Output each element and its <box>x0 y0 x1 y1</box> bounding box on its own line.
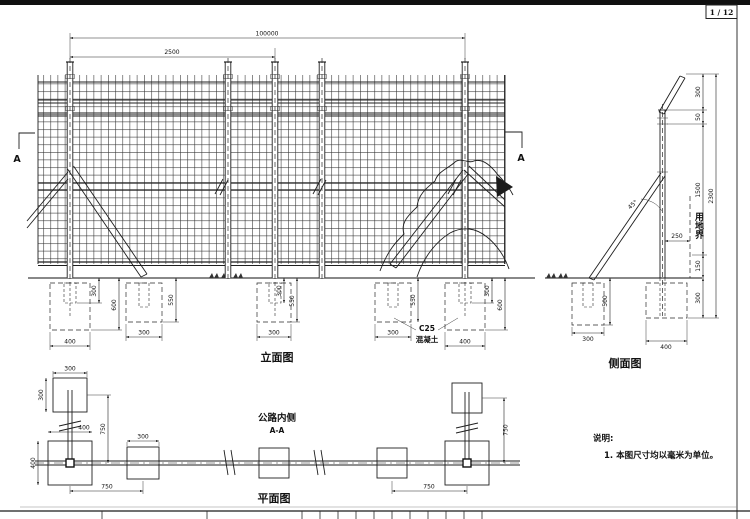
svg-text:400: 400 <box>78 425 90 432</box>
svg-text:50: 50 <box>695 113 702 121</box>
brace-angle: 45° <box>627 199 662 211</box>
svg-text:750: 750 <box>503 424 510 436</box>
svg-text:400: 400 <box>459 339 471 346</box>
svg-text:750: 750 <box>423 484 435 491</box>
svg-text:600: 600 <box>497 299 504 311</box>
plan-break-marks <box>224 450 325 475</box>
page-number: 1 / 12 <box>710 8 734 17</box>
foundation-brace2: 550 300 <box>375 278 418 341</box>
concrete-word: 混凝土 <box>416 334 439 344</box>
svg-text:2300: 2300 <box>708 188 715 203</box>
svg-text:2500: 2500 <box>164 49 179 56</box>
svg-text:300: 300 <box>695 292 702 304</box>
post <box>66 58 75 318</box>
notes-block: 说明: 1. 本图尺寸均以毫米为单位。 <box>593 433 718 461</box>
drawing-sheet: 1 / 12 <box>0 0 750 519</box>
side-dim-chain: 300 50 1500 150 300 2300 <box>667 74 719 318</box>
section-name: A-A <box>270 426 285 435</box>
post <box>461 58 470 318</box>
post <box>224 58 233 280</box>
anchor-footing <box>452 383 482 413</box>
section-letter: A <box>517 153 525 164</box>
post-section <box>463 459 471 467</box>
elevation-label: 立面图 <box>261 350 294 364</box>
svg-text:100000: 100000 <box>256 31 279 38</box>
post <box>271 58 280 318</box>
svg-text:400: 400 <box>64 339 76 346</box>
side-view: 45° 用地界 250 300 50 1500 150 300 <box>545 74 719 370</box>
svg-text:300: 300 <box>137 434 149 441</box>
side-brace <box>589 173 665 280</box>
plan-post-right <box>445 383 489 485</box>
svg-text:300: 300 <box>484 285 491 297</box>
top-border-bar <box>0 0 750 5</box>
foundation-brace1: 550 300 <box>126 278 179 341</box>
dim-total-length: 100000 <box>70 31 465 60</box>
foundation-post5: 300 600 400 <box>445 278 508 350</box>
notes-item: 1. 本图尺寸均以毫米为单位。 <box>604 450 718 461</box>
anchor-footing <box>53 378 87 412</box>
side-label: 侧面图 <box>609 356 642 370</box>
svg-text:550: 550 <box>168 294 175 306</box>
svg-text:300: 300 <box>268 330 280 337</box>
svg-text:250: 250 <box>671 233 683 240</box>
svg-text:300: 300 <box>38 389 45 401</box>
section-letter: A <box>13 154 21 165</box>
title-block <box>0 507 750 519</box>
ground-hatch <box>546 273 568 278</box>
svg-text:750: 750 <box>101 484 113 491</box>
notes-title: 说明: <box>593 433 613 444</box>
svg-text:300: 300 <box>138 330 150 337</box>
drawing-canvas: 1 / 12 <box>0 0 750 519</box>
svg-text:600: 600 <box>111 299 118 311</box>
svg-text:750: 750 <box>100 423 107 435</box>
plan-view: 300 300 400 400 750 750 300 750 750 公路内侧… <box>30 366 520 506</box>
post <box>318 58 327 280</box>
post-section <box>66 459 74 467</box>
svg-text:550: 550 <box>410 294 417 306</box>
side-post-arm <box>659 76 685 114</box>
svg-text:500: 500 <box>602 295 609 307</box>
mesh-horizontal-wires <box>38 82 505 264</box>
plan-post-left <box>48 378 92 485</box>
dim-bay: 2500 <box>70 48 275 59</box>
svg-text:45°: 45° <box>627 199 640 211</box>
side-post <box>657 104 668 316</box>
svg-text:550: 550 <box>289 295 296 307</box>
svg-text:1500: 1500 <box>695 182 702 197</box>
svg-text:150: 150 <box>695 260 702 272</box>
side-foundation-post: 400 <box>646 283 687 351</box>
svg-text:300: 300 <box>276 285 283 297</box>
svg-text:300: 300 <box>582 336 594 343</box>
dim-offset: 250 <box>665 233 690 241</box>
svg-text:300: 300 <box>695 86 702 98</box>
road-side-label: 公路内侧 <box>258 412 296 424</box>
svg-text:400: 400 <box>30 457 37 469</box>
concrete-grade: C25 <box>419 324 435 333</box>
svg-text:400: 400 <box>660 344 672 351</box>
foundation-post1: 300 600 400 <box>50 278 122 350</box>
section-marker-left: A <box>13 133 35 165</box>
svg-text:300: 300 <box>387 330 399 337</box>
elevation-view: A A 100000 2500 300 600 <box>13 31 535 365</box>
svg-text:300: 300 <box>91 285 98 297</box>
foundation-post3: 300 550 300 <box>257 278 300 341</box>
section-marker-right: A <box>505 132 525 164</box>
plan-label: 平面图 <box>258 492 291 505</box>
side-foundation-brace: 500 300 <box>572 278 613 343</box>
svg-text:300: 300 <box>64 366 76 373</box>
